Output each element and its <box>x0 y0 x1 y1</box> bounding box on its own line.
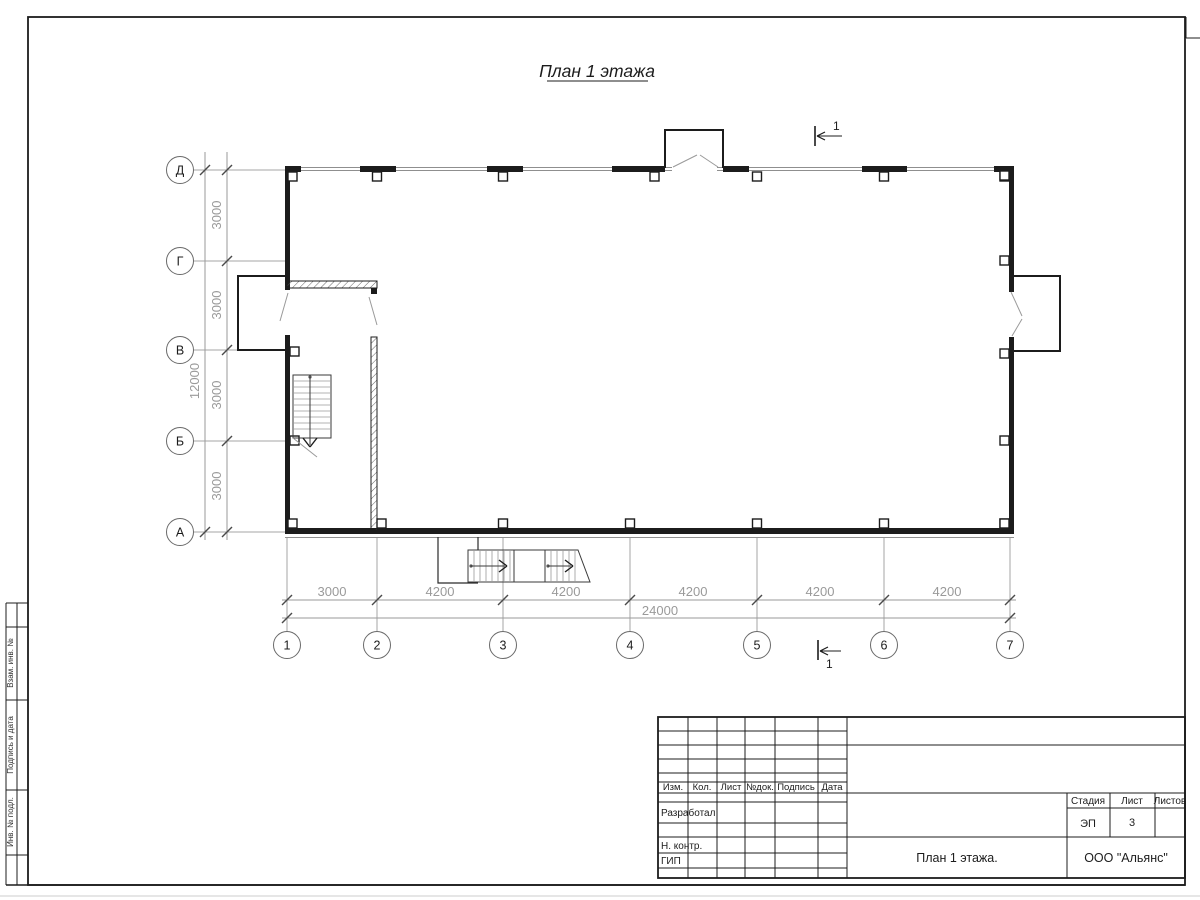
dim-total-text: 24000 <box>642 603 678 618</box>
margin-box-label: Инв. № подл. <box>6 797 15 847</box>
axis-row-label: Д <box>176 164 185 178</box>
tb-col-header: №док. <box>746 782 774 793</box>
axis-col-label: 2 <box>374 639 381 653</box>
tb-company: ООО "Альянс" <box>1084 851 1168 865</box>
tb-stage-label: Стадия <box>1071 796 1105 807</box>
axis-col-label: 6 <box>881 639 888 653</box>
section-label: 1 <box>833 119 840 133</box>
title-block: Изм. Кол. Лист №док. Подпись Дата Разраб… <box>658 717 1186 878</box>
tb-col-header: Изм. <box>663 782 683 793</box>
left-porch <box>238 276 288 350</box>
tb-sheet-value: 3 <box>1129 817 1135 829</box>
tb-col-header: Кол. <box>693 782 712 793</box>
dimension-texts: 3000 4200 4200 4200 4200 4200 24000 3000… <box>187 201 961 618</box>
axis-col-label: 3 <box>500 639 507 653</box>
section-label: 1 <box>826 657 833 671</box>
axis-bubble-col-labels: 1 2 3 4 5 6 7 <box>284 639 1014 653</box>
dim-total-text: 12000 <box>187 363 202 399</box>
dim-text: 3000 <box>209 291 224 320</box>
dim-text: 4200 <box>806 584 835 599</box>
drawing-title: План 1 этажа <box>539 61 655 81</box>
axis-col-label: 7 <box>1007 639 1014 653</box>
axis-row-label: В <box>176 344 184 358</box>
axis-row-label: Г <box>177 255 184 269</box>
axis-lines <box>194 170 1010 631</box>
dim-text: 4200 <box>426 584 455 599</box>
top-vestibule <box>665 130 723 168</box>
tb-sheet-label: Лист <box>1121 796 1143 807</box>
tb-stage-value: ЭП <box>1080 818 1096 830</box>
axis-row-label: А <box>176 526 185 540</box>
margin-box-label: Взам. инв. № <box>6 638 15 688</box>
dim-text: 3000 <box>209 472 224 501</box>
corner-box <box>1186 17 1200 38</box>
tb-doc-title: План 1 этажа. <box>916 851 997 865</box>
axis-bubbles-cols <box>274 632 1024 659</box>
interior-walls <box>287 281 377 530</box>
section-mark-bottom: 1 <box>818 640 841 671</box>
tb-col-header: Лист <box>721 782 742 793</box>
axis-row-label: Б <box>176 435 184 449</box>
drawing-sheet: Взам. инв. № Подпись и дата Инв. № подл.… <box>0 0 1200 900</box>
tb-role: Разработал <box>661 807 716 819</box>
tb-col-header: Подпись <box>777 782 815 793</box>
dimension-lines <box>205 152 1016 618</box>
sheet-frame: Взам. инв. № Подпись и дата Инв. № подл. <box>0 17 1200 896</box>
floor-plan-svg: Взам. инв. № Подпись и дата Инв. № подл.… <box>0 0 1200 900</box>
dim-text: 3000 <box>209 201 224 230</box>
dim-text: 4200 <box>679 584 708 599</box>
dim-text: 4200 <box>552 584 581 599</box>
tb-role: Н. контр. <box>661 841 702 852</box>
tb-role: ГИП <box>661 856 681 867</box>
entrance-stairs <box>438 537 590 583</box>
axis-col-label: 1 <box>284 639 291 653</box>
wall-pilasters <box>288 171 1009 528</box>
axis-bubble-row-labels: Д Г В Б А <box>176 164 185 540</box>
dim-text: 3000 <box>318 584 347 599</box>
section-mark-top: 1 <box>815 119 842 146</box>
dim-text: 3000 <box>209 381 224 410</box>
dim-text: 4200 <box>933 584 962 599</box>
tb-col-header: Дата <box>821 782 843 793</box>
dimension-ticks <box>200 165 1015 623</box>
axis-col-label: 4 <box>627 639 634 653</box>
axis-col-label: 5 <box>754 639 761 653</box>
tb-sheets-label: Листов <box>1154 796 1187 807</box>
page-title: План 1 этажа <box>539 61 655 81</box>
exterior-walls <box>285 166 1014 538</box>
margin-box-label: Подпись и дата <box>6 716 15 774</box>
right-porch <box>1011 276 1060 351</box>
